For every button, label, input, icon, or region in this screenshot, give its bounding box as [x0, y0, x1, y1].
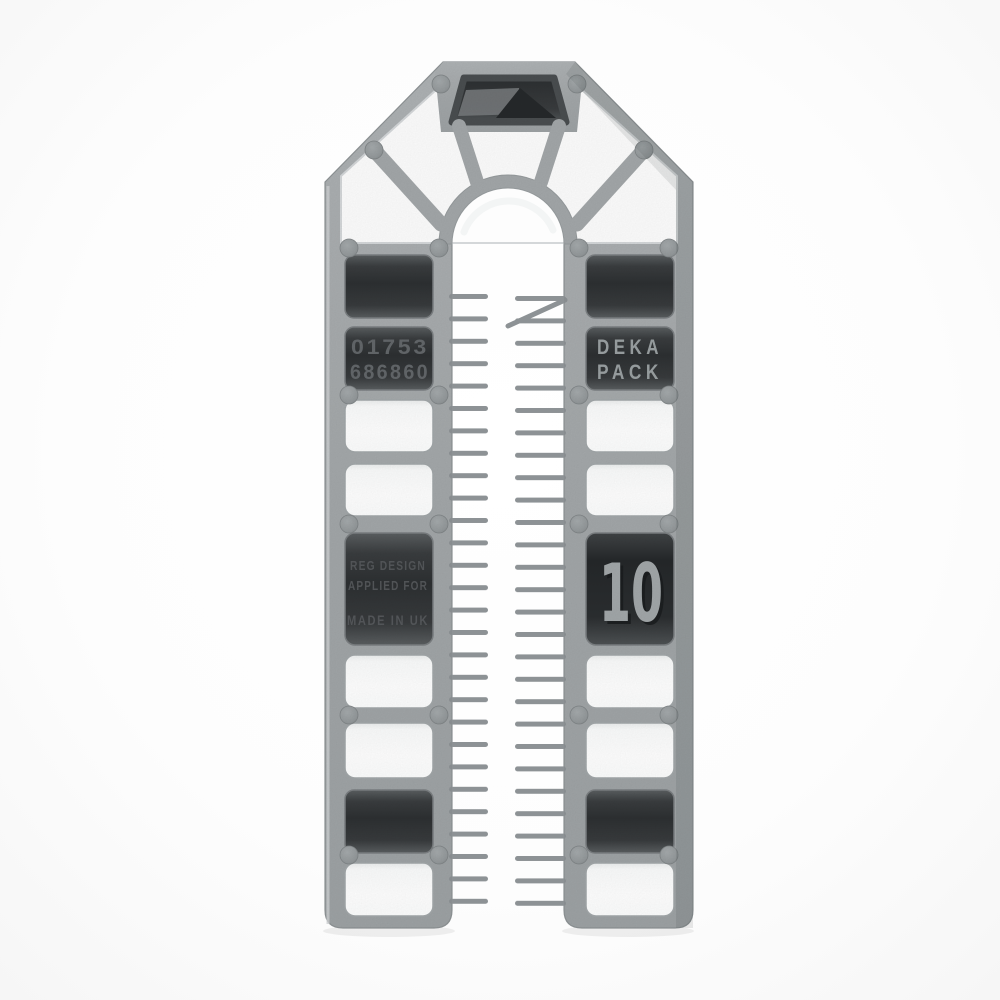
product-photo: 01753 686860 DEKA PACK REG DESIGN APPLIE…	[0, 0, 1000, 1000]
comb-teeth-left	[449, 294, 489, 910]
packer-shim: 01753 686860 DEKA PACK REG DESIGN APPLIE…	[300, 40, 720, 950]
noise-overlay	[300, 40, 720, 950]
photo-stage: 01753 686860 DEKA PACK REG DESIGN APPLIE…	[0, 0, 1000, 1000]
comb-teeth-right	[514, 296, 566, 912]
comb-teeth	[449, 294, 566, 912]
